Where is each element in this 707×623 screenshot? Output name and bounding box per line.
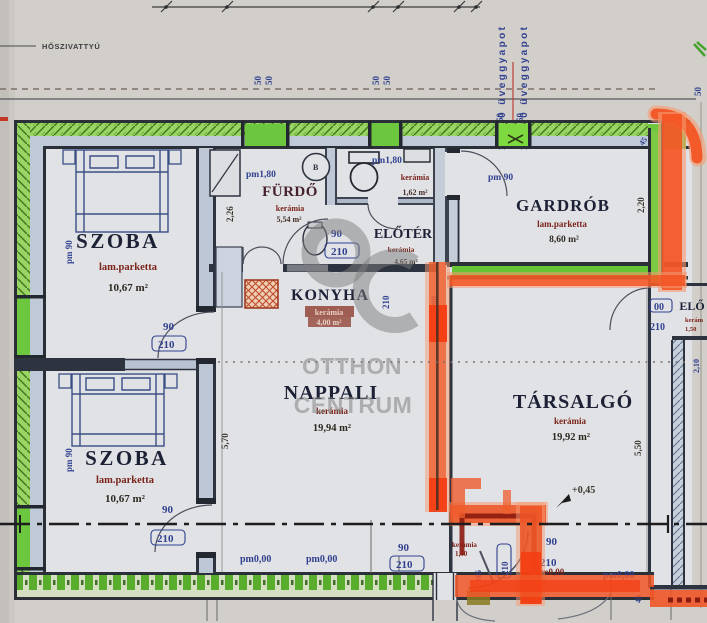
svg-text:1,62 m²: 1,62 m² [402, 188, 428, 197]
svg-text:B: B [313, 163, 319, 172]
svg-text:2,26: 2,26 [225, 206, 235, 222]
svg-text:1,50: 1,50 [685, 326, 696, 333]
svg-text:pm 90: pm 90 [64, 448, 74, 472]
svg-text:GARDRÓB: GARDRÓB [516, 196, 610, 215]
svg-text:50: 50 [382, 76, 392, 86]
svg-text:HŐSZIVATTYÚ: HŐSZIVATTYÚ [42, 42, 100, 51]
svg-text:50: 50 [253, 76, 263, 86]
svg-text:ELŐTÉR: ELŐTÉR [374, 225, 433, 242]
svg-text:00: 00 [654, 302, 664, 313]
svg-text:OTTHON: OTTHON [302, 353, 402, 379]
svg-text:19,92 m²: 19,92 m² [552, 432, 590, 443]
svg-text:10,67 m²: 10,67 m² [108, 282, 149, 294]
svg-text:210: 210 [650, 322, 665, 333]
svg-text:kerám: kerám [685, 317, 704, 324]
svg-text:kerámia: kerámia [315, 308, 343, 317]
svg-text:kerámia: kerámia [276, 204, 304, 213]
svg-text:210: 210 [158, 339, 175, 351]
svg-text:SZOBA: SZOBA [85, 446, 169, 470]
svg-text:5,50: 5,50 [633, 440, 643, 456]
svg-text:pm 90: pm 90 [64, 240, 74, 264]
svg-text:90: 90 [398, 542, 410, 554]
svg-text:kerámia: kerámia [554, 416, 586, 426]
svg-text:2,10: 2,10 [692, 359, 701, 373]
svg-text:CENTRUM: CENTRUM [294, 392, 413, 418]
svg-text:5,70: 5,70 [220, 433, 230, 449]
svg-text:2,20: 2,20 [636, 197, 646, 213]
svg-text:+0,45: +0,45 [572, 485, 595, 496]
svg-text:kerámia: kerámia [401, 173, 429, 182]
svg-text:TÁRSALGÓ: TÁRSALGÓ [513, 389, 633, 413]
svg-text:lam.parketta: lam.parketta [99, 262, 158, 273]
svg-text:210: 210 [331, 246, 348, 258]
svg-text:SZOBA: SZOBA [76, 229, 160, 253]
svg-text:210: 210 [157, 533, 174, 545]
svg-text:90: 90 [163, 321, 175, 333]
svg-text:pm0,00: pm0,00 [240, 554, 271, 565]
svg-text:90: 90 [546, 536, 558, 548]
svg-text:lam.parketta: lam.parketta [537, 219, 587, 229]
svg-text:50: 50 [264, 76, 274, 86]
svg-text:pm0,00: pm0,00 [306, 554, 337, 565]
svg-text:19,94 m²: 19,94 m² [313, 423, 351, 434]
svg-text:210: 210 [381, 295, 391, 309]
svg-text:5,54 m²: 5,54 m² [276, 215, 302, 224]
svg-text:210: 210 [396, 559, 413, 571]
svg-text:50: 50 [693, 87, 703, 97]
svg-text:kerámia: kerámia [452, 541, 477, 549]
svg-text:50: 50 [371, 76, 381, 86]
svg-text:8,60 m²: 8,60 m² [549, 235, 579, 245]
svg-text:pm 90: pm 90 [488, 173, 513, 183]
svg-text:pm1,80: pm1,80 [246, 170, 276, 180]
svg-text:FÜRDŐ: FÜRDŐ [262, 183, 318, 200]
svg-text:ELŐ: ELŐ [679, 298, 704, 313]
svg-text:4,00 m²: 4,00 m² [316, 318, 342, 327]
svg-text:pm1,80: pm1,80 [372, 156, 402, 166]
svg-text:lam.parketta: lam.parketta [96, 475, 155, 486]
svg-text:90: 90 [162, 504, 174, 516]
svg-text:10,67 m²: 10,67 m² [105, 493, 146, 505]
svg-text:210: 210 [500, 561, 510, 575]
